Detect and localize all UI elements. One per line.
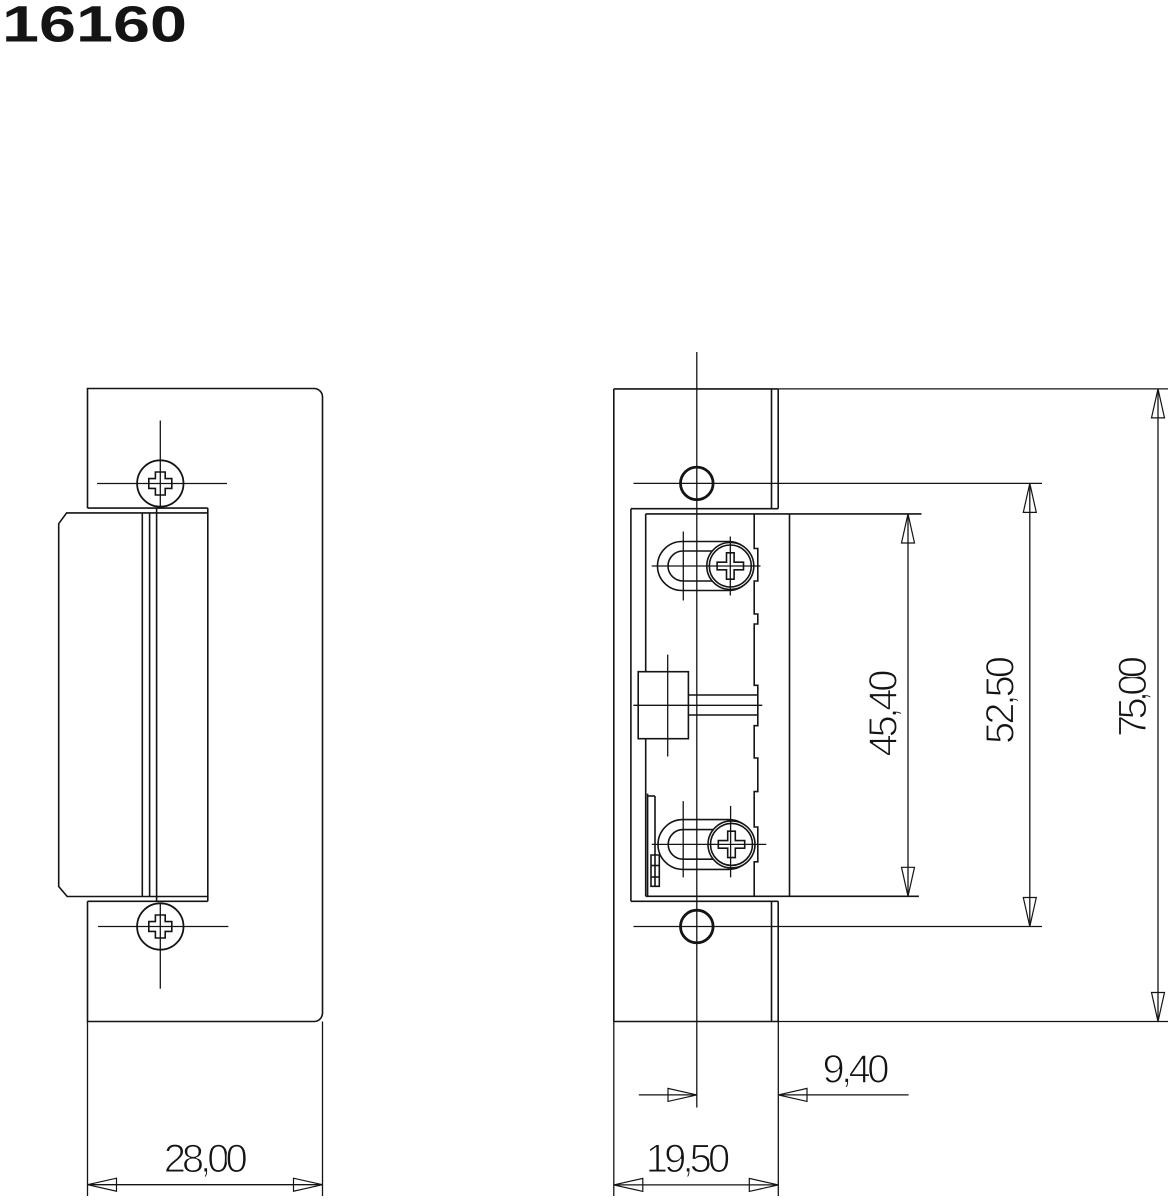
svg-text:19,50: 19,50 [646, 1137, 731, 1181]
svg-text:45,40: 45,40 [862, 670, 906, 757]
svg-text:9,40: 9,40 [823, 1048, 890, 1092]
svg-text:52,50: 52,50 [979, 656, 1023, 744]
svg-text:16160: 16160 [2, 0, 187, 53]
svg-text:75,00: 75,00 [1111, 656, 1155, 737]
svg-text:28,00: 28,00 [164, 1137, 248, 1181]
